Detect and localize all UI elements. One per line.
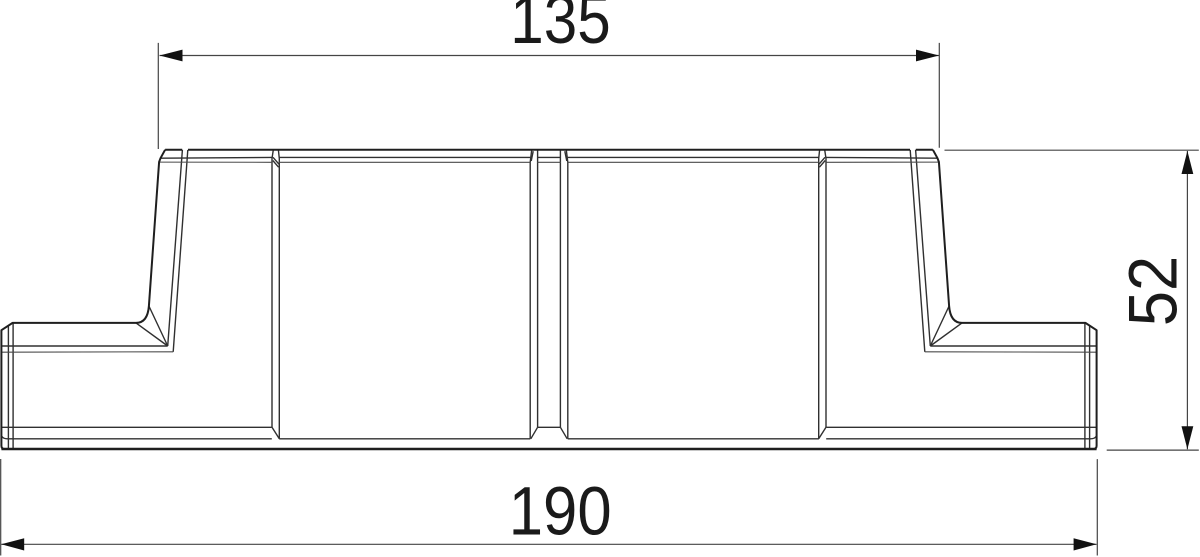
svg-text:135: 135 (510, 0, 610, 58)
svg-text:190: 190 (509, 473, 612, 550)
svg-text:52: 52 (1114, 256, 1191, 326)
